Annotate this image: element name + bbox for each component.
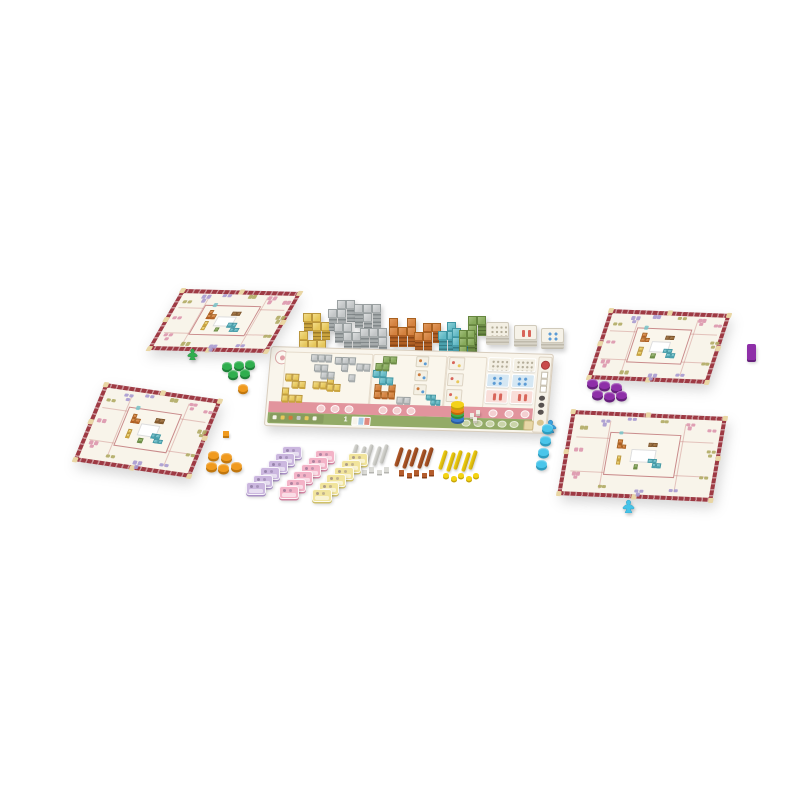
purple-rect-token: [747, 344, 756, 360]
orange-disc: [221, 453, 232, 462]
green-disc: [240, 369, 250, 377]
green-disc: [234, 361, 244, 369]
cyan-disc: [540, 436, 551, 445]
cyan-meeple: [621, 499, 636, 513]
board-game-scene: 1: [0, 0, 800, 800]
cyan-disc: [542, 424, 553, 433]
green-disc: [245, 360, 255, 368]
white-bit: [476, 410, 480, 414]
orange-cube: [223, 431, 229, 436]
orange-disc: [231, 462, 242, 471]
purple-disc: [604, 392, 615, 401]
green-disc: [222, 362, 232, 370]
orange-disc: [208, 451, 219, 460]
orange-disc: [218, 464, 229, 473]
cyan-disc: [536, 460, 547, 469]
cyan-disc: [538, 448, 549, 457]
purple-disc: [592, 390, 603, 399]
purple-disc: [599, 381, 610, 390]
rainbow-disc-stack-layer: [451, 401, 464, 408]
orange-disc: [238, 384, 248, 392]
purple-disc: [616, 391, 627, 400]
purple-disc: [587, 379, 598, 388]
meeple-icon: [621, 499, 636, 513]
green-disc: [228, 370, 238, 378]
orange-disc: [206, 462, 217, 471]
green-meeple: [186, 347, 199, 359]
meeple-icon: [186, 348, 199, 360]
player-tokens-layer: [0, 0, 800, 800]
white-bit: [473, 417, 477, 421]
